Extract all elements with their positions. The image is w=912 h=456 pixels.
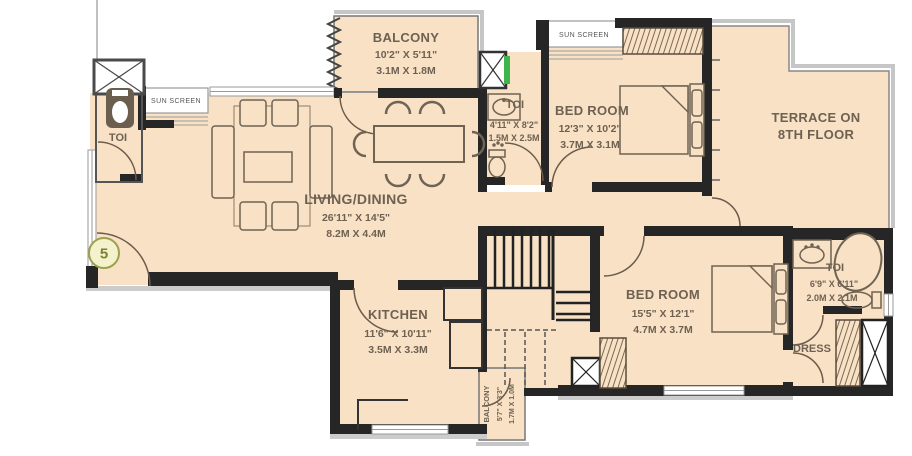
unit-number-badge: 5 bbox=[89, 238, 119, 268]
living-name: LIVING/DINING bbox=[304, 191, 407, 207]
window-kitchen-bottom bbox=[372, 425, 448, 434]
sunscreen-left-label: SUN SCREEN bbox=[151, 98, 201, 105]
wardrobe-bedroom-bottom bbox=[600, 338, 626, 388]
balcony-bottom-name: BALCONY bbox=[482, 385, 491, 422]
sunscreen-bedroom-label: SUN SCREEN bbox=[559, 32, 609, 39]
dress-name: DRESS bbox=[793, 343, 831, 355]
toi-mid-dim-m: 1.5M X 2.5M bbox=[488, 133, 539, 143]
balcony-bottom-dim-m: 1.7M X 1.0M bbox=[509, 384, 516, 424]
wardrobe-dress bbox=[836, 320, 860, 386]
window-bedroom-bottom bbox=[664, 386, 744, 395]
toi-mid-dim-ft: 4'11" X 8'2" bbox=[490, 120, 538, 130]
kitchen-dim-ft: 11'6" X 10'11" bbox=[364, 328, 432, 340]
toi-right-dim-m: 2.0M X 2.1M bbox=[806, 293, 857, 303]
label-kitchen: KITCHEN 11'6" X 10'11" 3.5M X 3.3M bbox=[364, 307, 432, 356]
bed-icon-bedroom-bottom bbox=[712, 264, 788, 334]
bedroom-top-dim-m: 3.7M X 3.1M bbox=[560, 139, 620, 151]
coffee-table-icon bbox=[244, 152, 292, 182]
toi-right-dim-ft: 6'9" X 6'11" bbox=[810, 279, 858, 289]
toi-mid-name: TOI bbox=[506, 99, 524, 111]
floor-plan: SUN SCREEN SUN SCREEN bbox=[0, 0, 912, 456]
shaft-icon-bedroom-bottom bbox=[572, 358, 600, 386]
window-toi-right bbox=[884, 294, 893, 316]
shaft-icon-dress bbox=[862, 320, 888, 386]
window-living-top bbox=[210, 87, 334, 96]
unit-number: 5 bbox=[100, 246, 108, 263]
label-balcony-top: BALCONY 10'2" X 5'11" 3.1M X 1.8M bbox=[373, 30, 439, 77]
bedroom-top-dim-ft: 12'3" X 10'2" bbox=[559, 123, 622, 135]
terrace-name-line1: TERRACE ON bbox=[772, 110, 861, 125]
label-bedroom-bottom: BED ROOM 15'5" X 12'1" 4.7M X 3.7M bbox=[626, 287, 700, 336]
door-marker-green bbox=[504, 56, 510, 84]
kitchen-dim-m: 3.5M X 3.3M bbox=[368, 344, 428, 356]
bed-icon-bedroom-top bbox=[620, 84, 704, 156]
wardrobe-bedroom-top bbox=[623, 28, 703, 54]
living-dim-ft: 26'11" X 14'5" bbox=[322, 212, 390, 224]
balcony-top-dim-ft: 10'2" X 5'11" bbox=[375, 49, 437, 61]
label-bedroom-top: BED ROOM 12'3" X 10'2" 3.7M X 3.1M bbox=[555, 103, 629, 151]
bedroom-top-name: BED ROOM bbox=[555, 103, 629, 118]
bedroom-bottom-name: BED ROOM bbox=[626, 287, 700, 302]
toilet-icon-left bbox=[106, 88, 134, 128]
living-dim-m: 8.2M X 4.4M bbox=[326, 228, 386, 240]
toi-right-name: TOI bbox=[826, 262, 844, 274]
floor-plan-drawing: SUN SCREEN SUN SCREEN bbox=[0, 0, 912, 456]
bedroom-bottom-dim-m: 4.7M X 3.7M bbox=[633, 324, 693, 336]
balcony-top-name: BALCONY bbox=[373, 30, 439, 45]
shaft-icon-toi-mid bbox=[480, 52, 506, 88]
label-balcony-bottom: BALCONY 5'7" X 3'3" 1.7M X 1.0M bbox=[482, 384, 516, 424]
balcony-top-dim-m: 3.1M X 1.8M bbox=[376, 65, 436, 77]
terrace-name-line2: 8TH FLOOR bbox=[778, 127, 855, 142]
toi-left-name: TOI bbox=[109, 132, 127, 144]
balcony-bottom-dim-ft: 5'7" X 3'3" bbox=[497, 387, 504, 421]
bedroom-bottom-dim-ft: 15'5" X 12'1" bbox=[632, 308, 695, 320]
kitchen-name: KITCHEN bbox=[368, 307, 428, 322]
